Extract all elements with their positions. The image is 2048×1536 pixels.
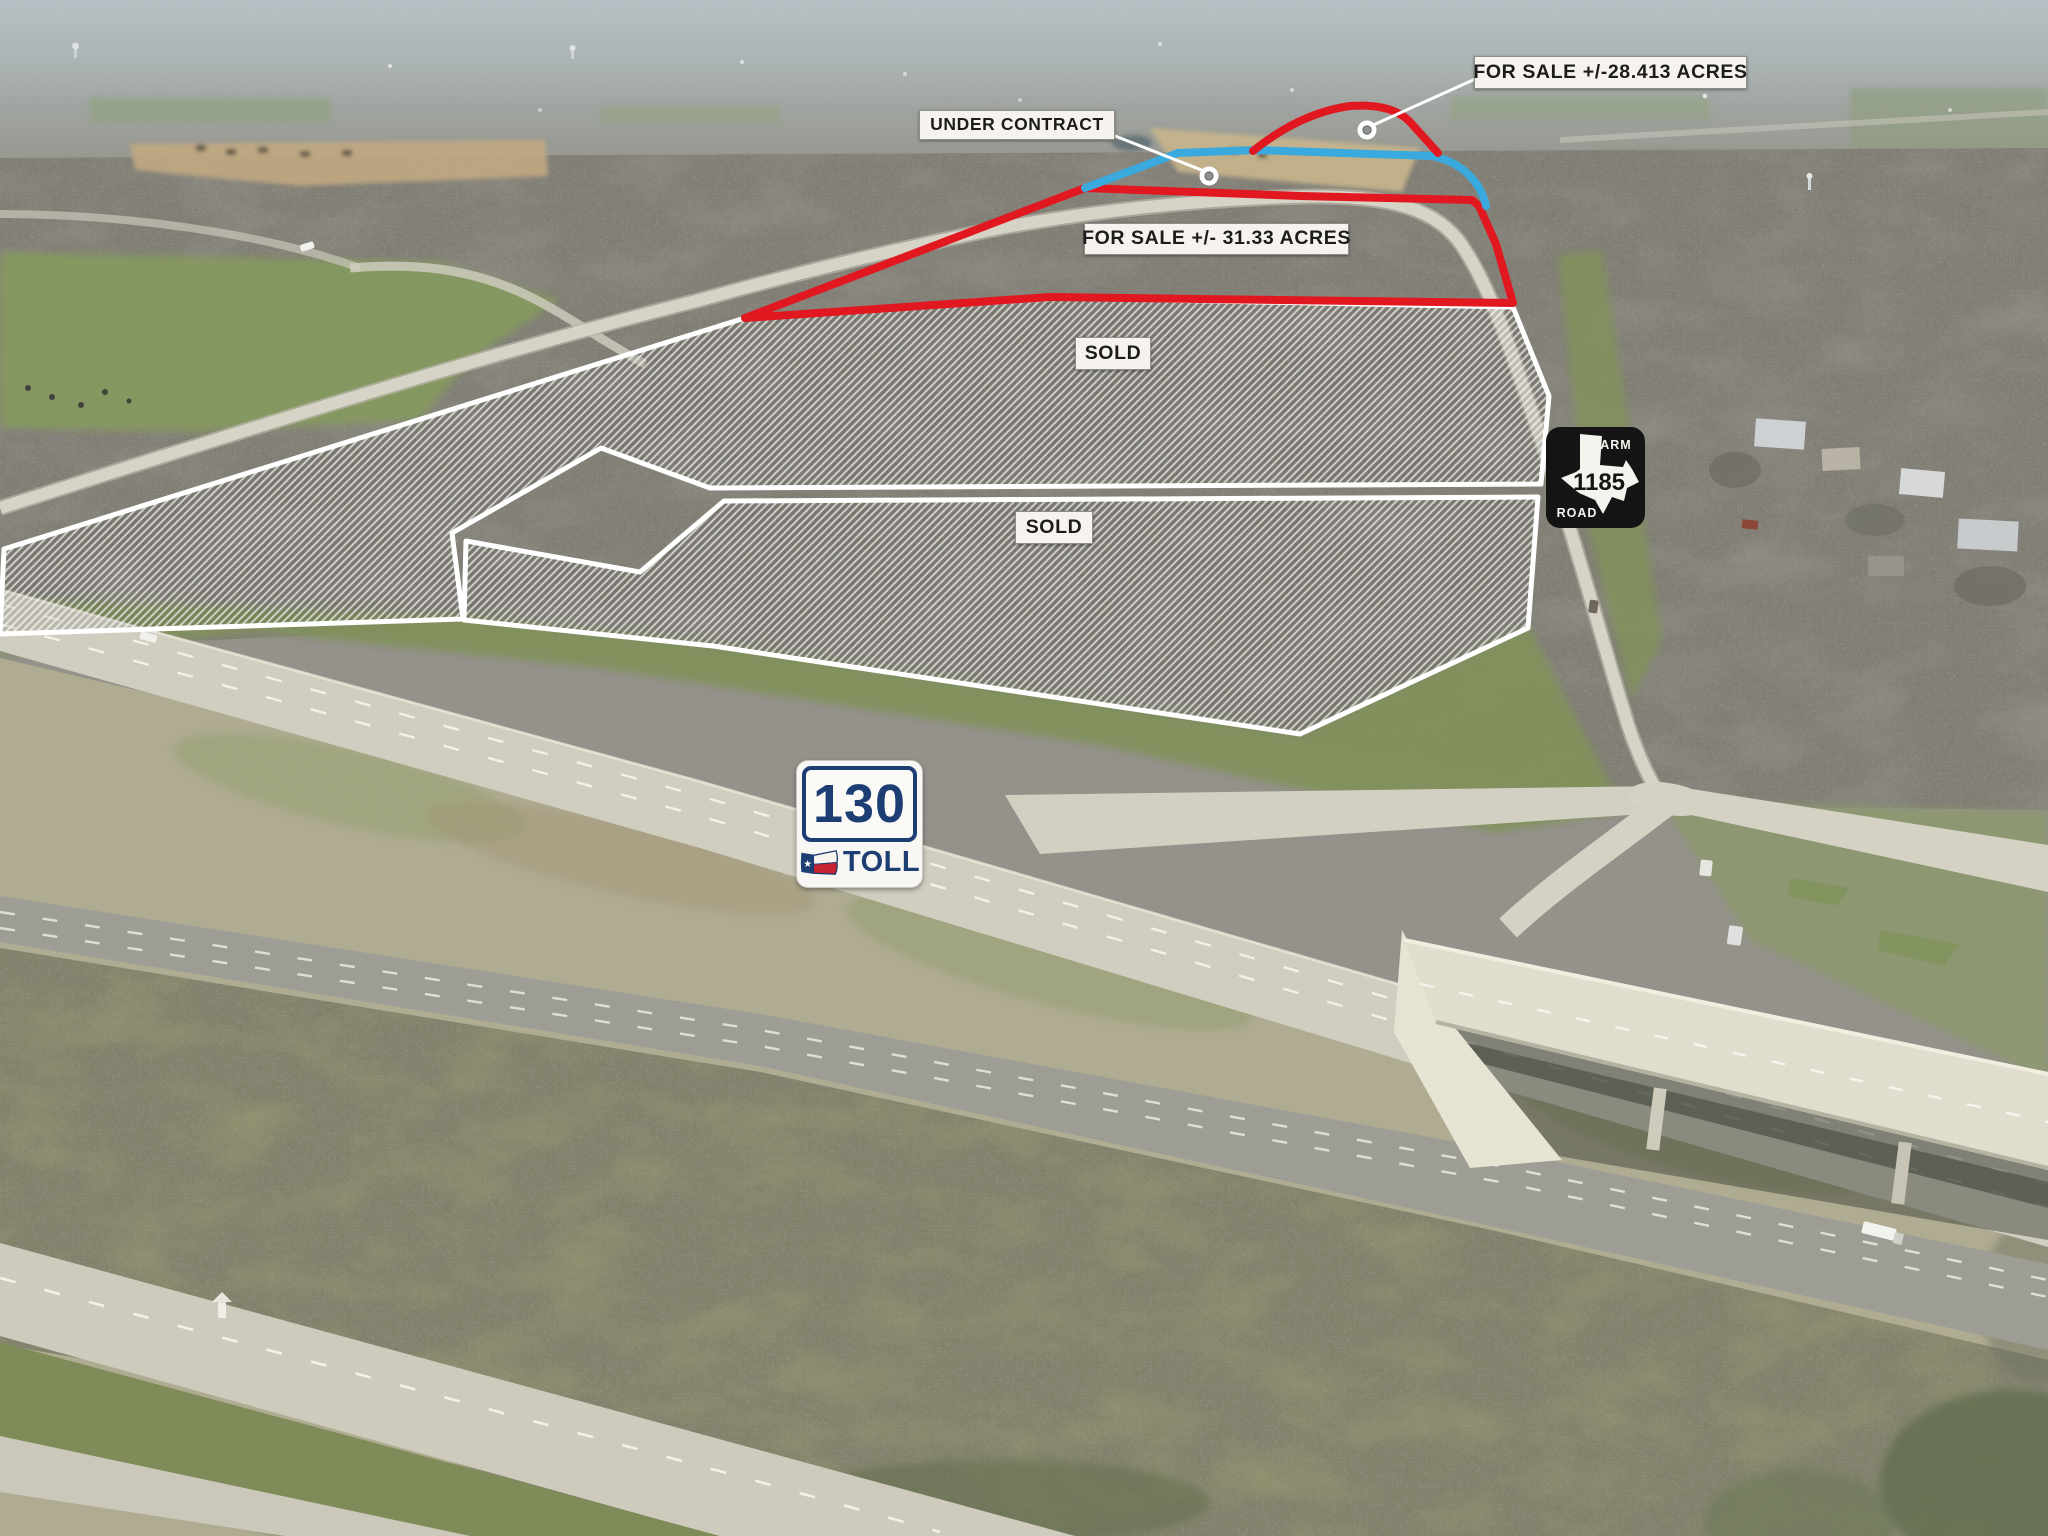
marker-circle-28ac (1358, 121, 1377, 140)
sh130-number: 130 (813, 773, 906, 835)
label-sold-lower: SOLD (1015, 511, 1093, 544)
sh130-toll-row: ★ TOLL (799, 842, 920, 882)
farm-road-shield-graphic: FARM 1185 ROAD (1546, 427, 1645, 528)
label-under-contract: UNDER CONTRACT (919, 110, 1115, 140)
sh130-toll-shield: 130 ★ TOLL (796, 760, 923, 888)
grain-overlay (0, 0, 2048, 1536)
texas-flag-icon: ★ (799, 849, 839, 876)
sh130-toll-word: TOLL (843, 846, 920, 879)
sh130-number-box: 130 (802, 766, 917, 842)
farm-road-1185-shield: FARM 1185 ROAD (1546, 427, 1645, 528)
label-for-sale-31-acres: FOR SALE +/- 31.33 ACRES (1084, 223, 1349, 255)
label-sold-upper: SOLD (1075, 337, 1151, 370)
texas-flag-star: ★ (803, 859, 812, 870)
farm-road-shield-number: 1185 (1573, 469, 1625, 496)
marker-circle-under-contract (1200, 167, 1219, 186)
farm-road-shield-bottom-text: ROAD (1557, 506, 1598, 520)
farm-road-shield-top-text: FARM (1592, 438, 1631, 452)
aerial-photo (0, 0, 2048, 1536)
label-for-sale-28-acres: FOR SALE +/-28.413 ACRES (1474, 56, 1747, 89)
aerial-listing-image: FOR SALE +/-28.413 ACRES UNDER CONTRACT … (0, 0, 2048, 1536)
